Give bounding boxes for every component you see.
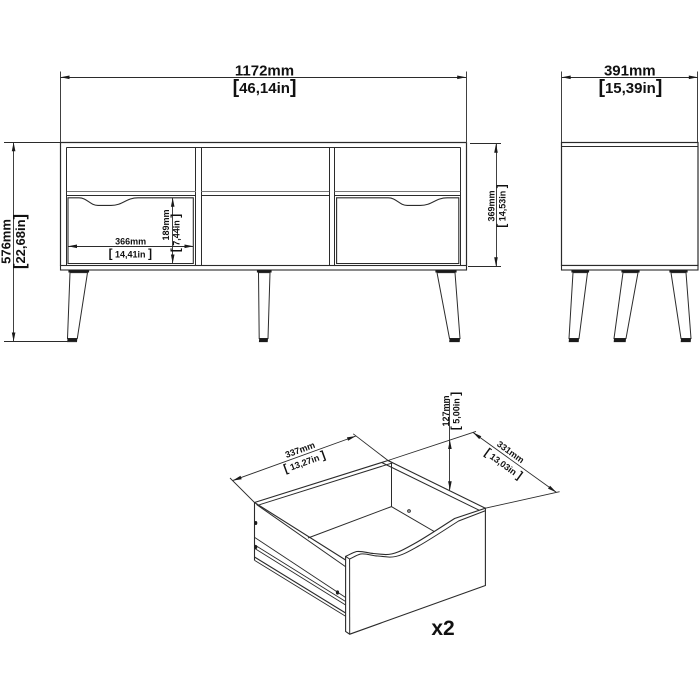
svg-text:[15,39in]: [15,39in] [598, 76, 662, 98]
svg-text:[ 7,44in ]: [ 7,44in ] [170, 214, 183, 252]
svg-text:[ 5,00in ]: [ 5,00in ] [450, 392, 463, 430]
svg-text:369mm: 369mm [486, 190, 496, 221]
svg-text:x2: x2 [431, 617, 454, 640]
svg-text:391mm: 391mm [604, 63, 656, 80]
svg-text:366mm: 366mm [115, 236, 146, 246]
svg-text:[46,14in]: [46,14in] [233, 76, 297, 98]
svg-text:[ 14,41in ]: [ 14,41in ] [109, 248, 152, 261]
svg-text:[ 14,53in ]: [ 14,53in ] [495, 184, 508, 227]
svg-text:576mm: 576mm [0, 219, 13, 264]
svg-text:127mm: 127mm [441, 395, 451, 426]
svg-text:1172mm: 1172mm [235, 63, 294, 80]
svg-text:[22,68in]: [22,68in] [10, 214, 29, 269]
